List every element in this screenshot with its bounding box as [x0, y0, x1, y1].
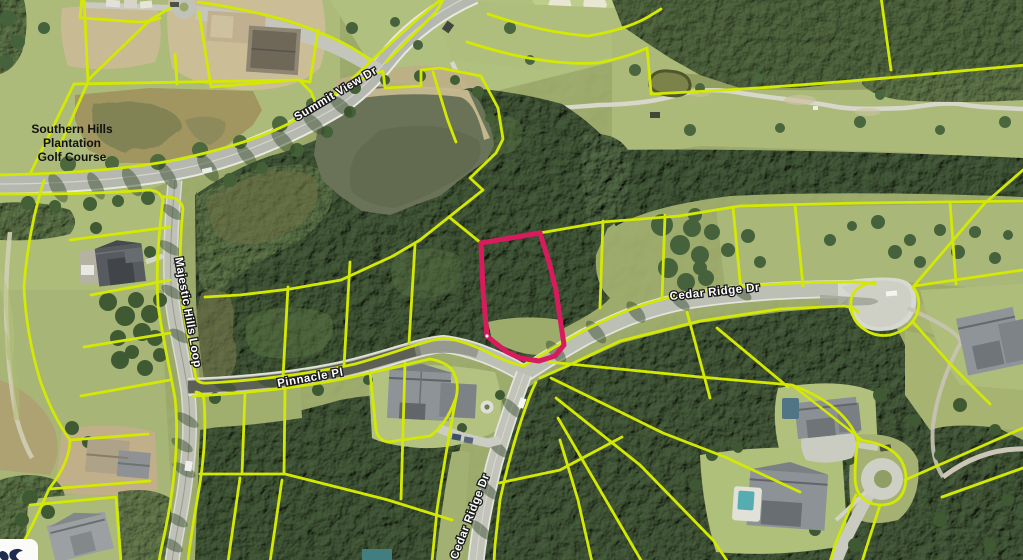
svg-text:Plantation: Plantation: [43, 136, 101, 150]
svg-text:Golf Course: Golf Course: [38, 150, 107, 164]
svg-text:Southern Hills: Southern Hills: [31, 122, 113, 136]
